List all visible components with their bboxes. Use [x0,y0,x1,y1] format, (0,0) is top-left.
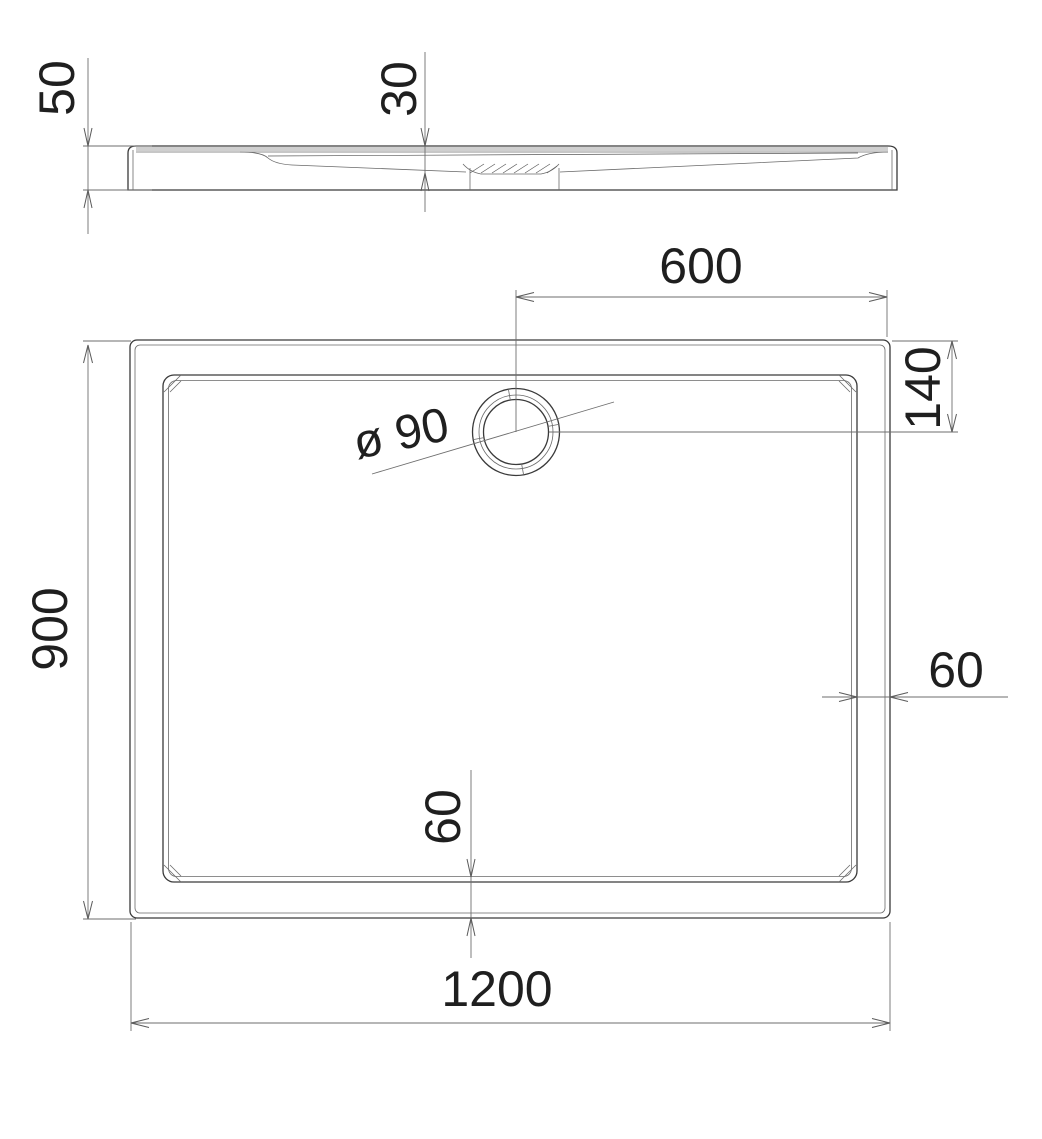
dimension-side-height: 50 [29,58,152,234]
dim-drain-offset-y-label: 140 [895,346,951,429]
side-view-outline [128,146,897,190]
shower-tray-drawing-canvas: 50 30 [0,0,1042,1139]
dimension-rim-width-bottom: 60 [415,770,475,958]
dimension-tray-width: 900 [22,341,136,919]
dimension-tray-length: 1200 [131,922,890,1031]
dim-drain-offset-x-label: 600 [659,238,742,294]
dimension-rim-width-right: 60 [822,642,1008,702]
plan-view: ø 90 [130,340,890,918]
dim-tray-length-label: 1200 [441,961,552,1017]
side-view-right-lip [560,152,888,172]
dimension-drain-offset-x: 600 [516,238,887,432]
dim-tray-width-label: 900 [22,587,78,670]
side-view-rim-shade [136,147,888,151]
dim-rim-width-right-label: 60 [928,642,984,698]
technical-drawing: 50 30 [0,0,1042,1139]
dim-rim-width-bottom-label: 60 [415,789,471,845]
dimension-basin-depth: 30 [371,52,429,212]
side-view-basin-edge-line [268,153,858,156]
plan-view-outer-edge-inner-line [135,345,885,913]
dimension-drain-offset-y: 140 [549,341,958,432]
plan-view-outer-edge [130,340,890,918]
plan-view-corner-bevels [164,375,856,882]
dim-drain-diameter-label: ø 90 [349,398,454,470]
dim-basin-depth-label: 30 [371,61,427,117]
plan-view-basin-rim [163,375,857,882]
side-view-drain-hatch [470,164,557,173]
plan-view-basin-rim-inner-line [169,381,852,877]
side-view [128,146,897,190]
side-view-drain-recess [463,164,559,174]
dim-side-height-label: 50 [29,60,85,116]
